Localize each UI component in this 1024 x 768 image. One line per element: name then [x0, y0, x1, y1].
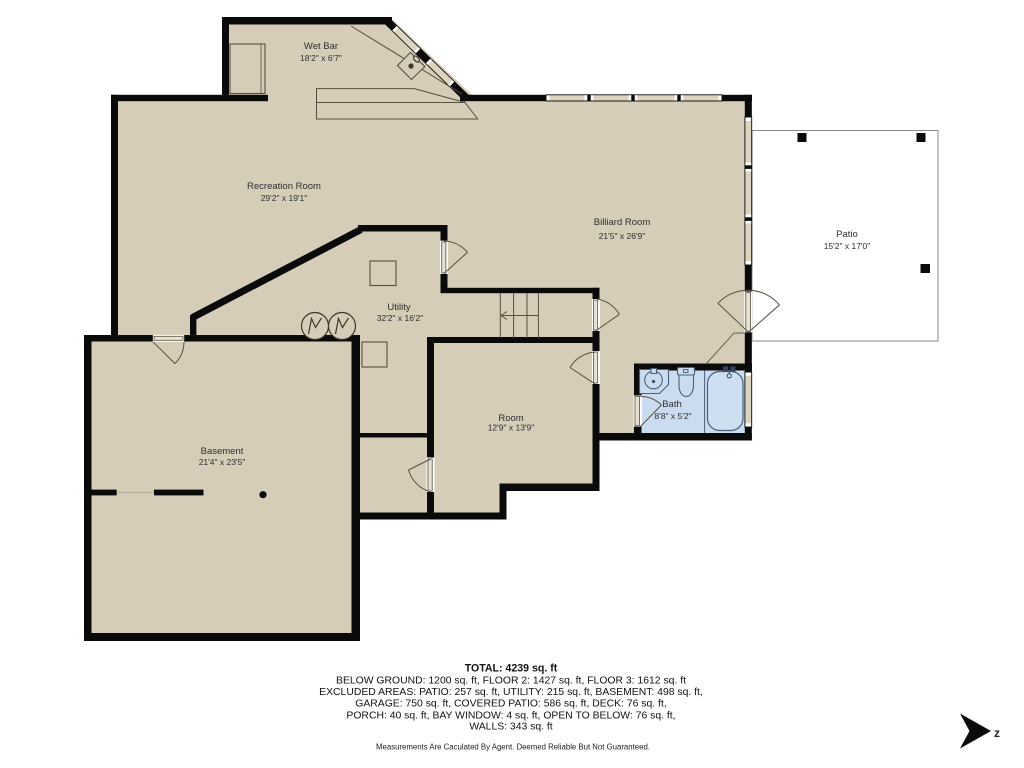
svg-text:GARAGE: 750 sq. ft, COVERED PA: GARAGE: 750 sq. ft, COVERED PATIO: 586 s…: [355, 699, 666, 710]
svg-text:12'9" x 13'9": 12'9" x 13'9": [488, 423, 535, 433]
svg-text:15'2" x 17'0": 15'2" x 17'0": [824, 241, 871, 251]
svg-text:Wet Bar: Wet Bar: [304, 41, 338, 52]
svg-text:Bath: Bath: [662, 399, 682, 410]
svg-text:8'8" x 5'2": 8'8" x 5'2": [654, 411, 691, 421]
svg-text:21'5" x 26'9": 21'5" x 26'9": [599, 231, 646, 241]
svg-text:EXCLUDED AREAS: PATIO: 257 sq.: EXCLUDED AREAS: PATIO: 257 sq. ft, UTILI…: [319, 687, 703, 698]
svg-text:32'2" x 16'2": 32'2" x 16'2": [377, 313, 424, 323]
svg-text:BELOW GROUND: 1200 sq. ft, FLO: BELOW GROUND: 1200 sq. ft, FLOOR 2: 1427…: [336, 675, 686, 686]
svg-text:Basement: Basement: [201, 446, 244, 457]
svg-text:Billiard Room: Billiard Room: [594, 217, 651, 228]
svg-text:PORCH: 40 sq. ft, BAY WINDOW:: PORCH: 40 sq. ft, BAY WINDOW: 4 sq. ft, …: [346, 710, 675, 721]
svg-text:Utility: Utility: [387, 302, 410, 313]
svg-text:WALLS: 343 sq. ft: WALLS: 343 sq. ft: [469, 722, 552, 733]
svg-text:21'4" x 23'5": 21'4" x 23'5": [199, 457, 246, 467]
svg-text:Recreation Room: Recreation Room: [247, 181, 321, 192]
svg-text:29'2" x 19'1": 29'2" x 19'1": [261, 193, 308, 203]
svg-text:TOTAL: 4239 sq. ft: TOTAL: 4239 sq. ft: [465, 663, 558, 675]
svg-text:18'2" x 6'7": 18'2" x 6'7": [300, 53, 342, 63]
svg-text:Measurements Are Caculated By: Measurements Are Caculated By Agent. Dee…: [376, 743, 650, 752]
svg-text:z: z: [994, 726, 1000, 740]
svg-text:Patio: Patio: [836, 229, 858, 240]
